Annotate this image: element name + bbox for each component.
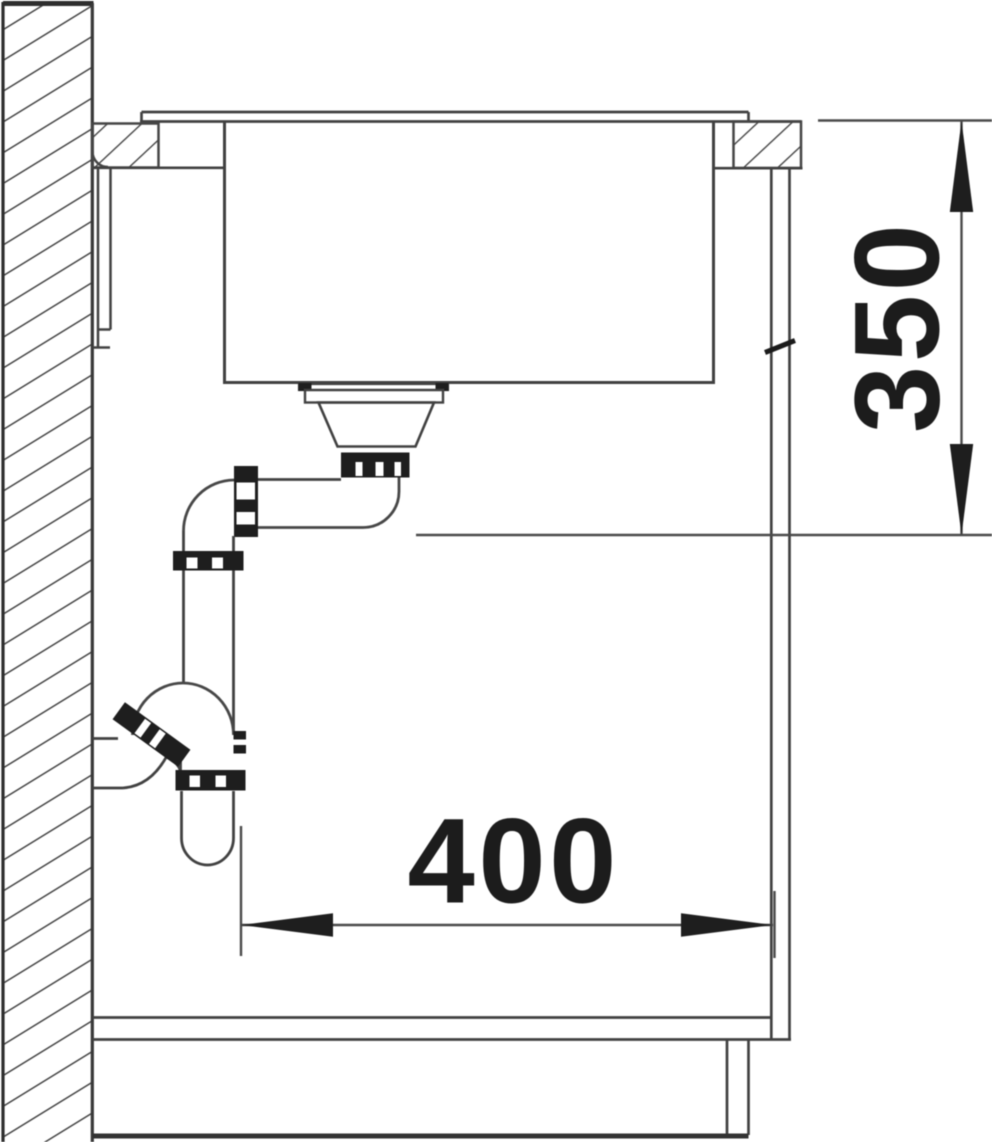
svg-text:350: 350 xyxy=(829,221,965,433)
svg-text:400: 400 xyxy=(408,793,620,929)
